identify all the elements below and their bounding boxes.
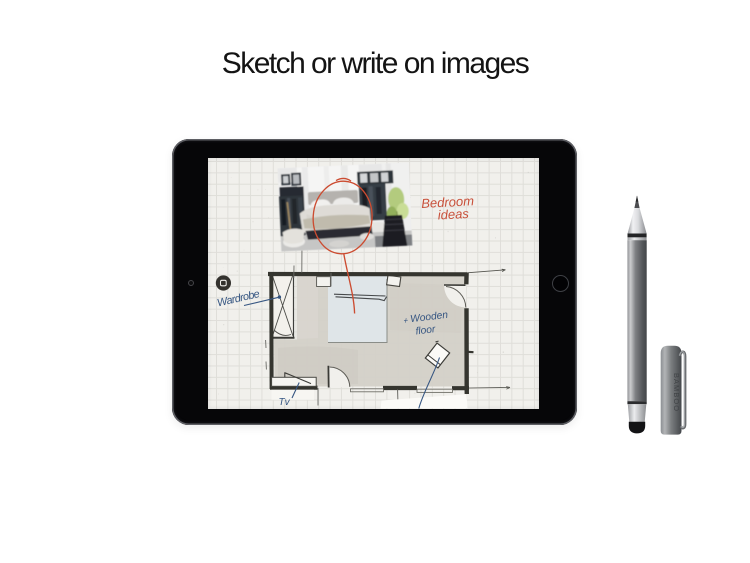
- svg-text:ideas: ideas: [437, 205, 469, 222]
- svg-text:Wardrobe: Wardrobe: [216, 287, 261, 308]
- svg-text:BAMBOO: BAMBOO: [672, 373, 681, 412]
- svg-text:Tv: Tv: [279, 397, 291, 408]
